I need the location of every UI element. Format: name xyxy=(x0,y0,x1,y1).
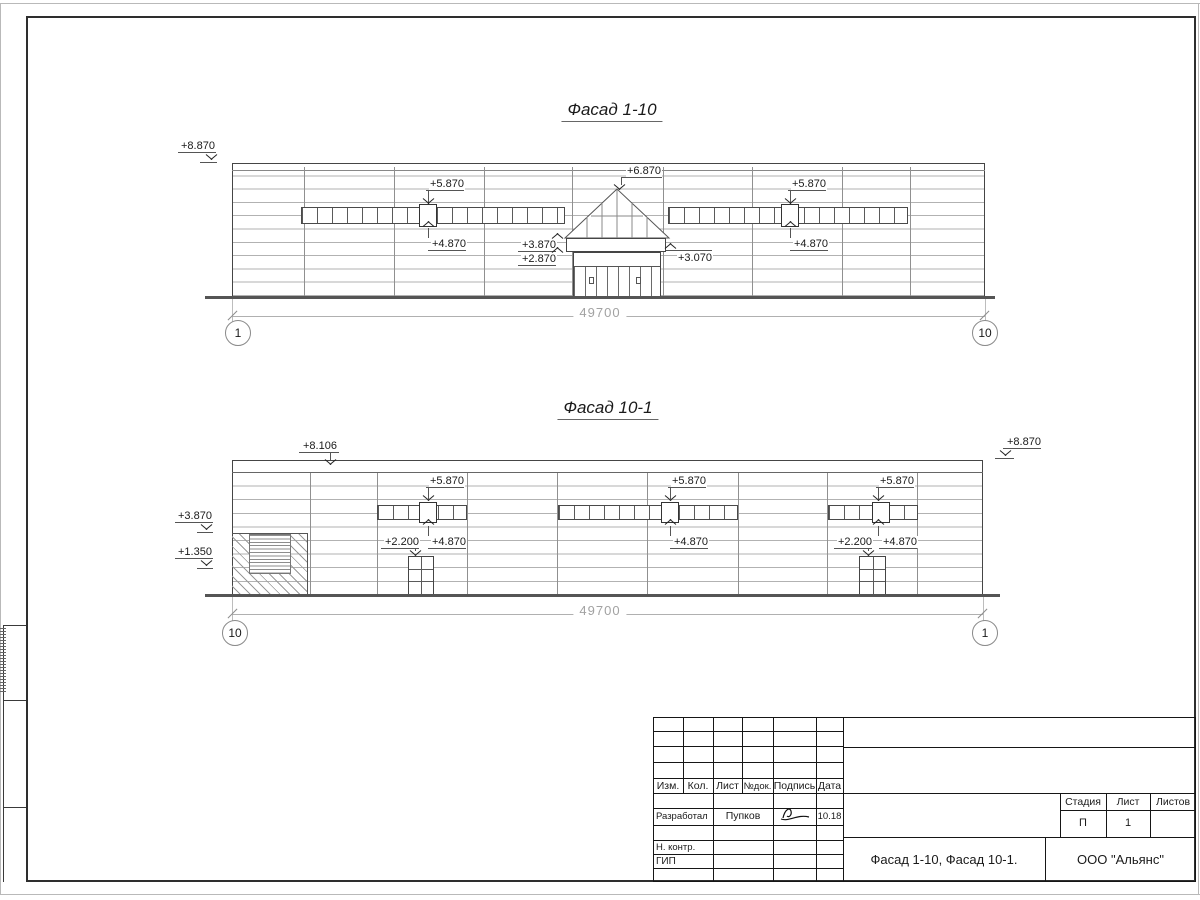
column-line xyxy=(917,473,918,594)
elevation-shelf-line xyxy=(426,487,464,488)
elevation-label: +2.870 xyxy=(521,253,557,265)
facade1-ground-line xyxy=(205,296,995,299)
elevation-arrow-icon xyxy=(423,495,434,501)
elevation-shelf-line xyxy=(428,250,466,251)
drawing-sheet: Фасад 1-10 49700 1 10 +8.870+5.870+4.870… xyxy=(0,0,1200,900)
elevation-label: +5.870 xyxy=(791,178,827,190)
signature xyxy=(779,805,813,823)
column-line xyxy=(647,473,648,594)
stamp-sheet-value: 1 xyxy=(1106,817,1150,829)
elevation-arrow-icon xyxy=(410,550,421,556)
elevation-shelf-line xyxy=(834,548,872,549)
elevation-leader-line xyxy=(790,228,791,238)
column-line xyxy=(557,473,558,594)
elevation-shelf-line xyxy=(178,152,216,153)
stamp-role-developed: Разработал xyxy=(656,811,708,822)
grid-bubble-label: 1 xyxy=(982,626,989,640)
elevation-label: +1.350 xyxy=(177,546,213,558)
elevation-arrow-icon xyxy=(1000,450,1011,456)
title-block-line xyxy=(653,854,843,855)
column-line xyxy=(394,167,395,296)
dimension-value: 49700 xyxy=(573,603,626,618)
elevation-shelf-line xyxy=(668,487,706,488)
title-block-line xyxy=(653,793,843,794)
elevation-shelf-line xyxy=(790,250,828,251)
stamp-organization: ООО "Альянс" xyxy=(1045,852,1196,867)
elevation-base-line xyxy=(995,458,1014,459)
elevation-arrow-icon xyxy=(201,560,212,566)
side-door xyxy=(408,556,434,595)
column-line xyxy=(827,473,828,594)
elevation-label: +8.106 xyxy=(302,440,338,452)
title-block-line xyxy=(843,837,1196,838)
elevation-label: +4.870 xyxy=(431,238,467,250)
elevation-label: +8.870 xyxy=(1006,436,1042,448)
title-block-line xyxy=(843,747,1196,748)
elevation-shelf-line xyxy=(876,487,914,488)
stamp-stage-value: П xyxy=(1060,817,1106,829)
stamp-header-ndok: №док. xyxy=(742,781,773,792)
column-line xyxy=(377,473,378,594)
title-block-line xyxy=(816,717,817,882)
elevation-shelf-line xyxy=(879,548,917,549)
stamp-sheets-header: Листов xyxy=(1150,796,1196,808)
margin-cell-line xyxy=(3,625,26,626)
elevation-arrow-icon xyxy=(665,243,676,249)
elevation-shelf-line xyxy=(1003,448,1041,449)
stamp-header-list: Лист xyxy=(713,780,742,792)
elevation-shelf-line xyxy=(428,548,466,549)
elevation-arrow-icon xyxy=(665,495,676,501)
entrance-door-mullions xyxy=(574,266,660,296)
elevation-base-line xyxy=(200,162,217,163)
title-block-line xyxy=(653,840,843,841)
stamp-sheet-header: Лист xyxy=(1106,796,1150,808)
elevation-label: +3.870 xyxy=(177,510,213,522)
column-line xyxy=(310,473,311,594)
louver-grille xyxy=(249,534,291,574)
stamp-stage-header: Стадия xyxy=(1060,796,1106,808)
elevation-label: +5.870 xyxy=(429,475,465,487)
title-block-line xyxy=(653,746,843,747)
title-block-line xyxy=(653,825,843,826)
title-block-line xyxy=(773,717,774,882)
elevation-arrow-icon xyxy=(614,184,625,190)
door-handle xyxy=(589,277,594,284)
entrance-canopy xyxy=(566,238,666,252)
margin-cell-line xyxy=(3,700,26,701)
facade2-ground-line xyxy=(205,594,1000,597)
stamp-role-ncontrol: Н. контр. xyxy=(656,842,695,853)
entrance-doors xyxy=(573,252,661,297)
elevation-shelf-line xyxy=(175,558,213,559)
stamp-date: 10.18 xyxy=(816,811,843,822)
elevation-label: +8.870 xyxy=(180,140,216,152)
elevation-leader-line xyxy=(878,526,879,536)
stamp-header-data: Дата xyxy=(816,780,843,792)
grid-bubble-label: 10 xyxy=(978,326,991,340)
elevation-arrow-icon xyxy=(423,221,434,227)
elevation-arrow-icon xyxy=(423,198,434,204)
stamp-developed-by: Пупков xyxy=(713,810,773,822)
elevation-label: +5.870 xyxy=(879,475,915,487)
elevation-shelf-line xyxy=(299,452,339,453)
elevation-base-line xyxy=(197,532,213,533)
elevation-label: +4.870 xyxy=(673,536,709,548)
outer-border-top xyxy=(0,3,1200,4)
elevation-arrow-icon xyxy=(873,519,884,525)
elevation-label: +4.870 xyxy=(793,238,829,250)
facade1-title-text: Фасад 1-10 xyxy=(561,100,662,122)
column-line xyxy=(304,167,305,296)
elevation-label: +3.070 xyxy=(677,252,713,264)
stamp-role-gip: ГИП xyxy=(656,856,676,867)
elevation-shelf-line xyxy=(622,177,662,178)
entrance-transom xyxy=(574,266,660,267)
elevation-arrow-icon xyxy=(873,495,884,501)
grid-bubble-label: 10 xyxy=(228,626,241,640)
column-line xyxy=(752,167,753,296)
elevation-leader-line xyxy=(428,526,429,536)
title-block-line xyxy=(713,717,714,882)
elevation-arrow-icon xyxy=(785,198,796,204)
outer-border-bottom xyxy=(0,894,1200,895)
title-block-line xyxy=(653,762,843,763)
elevation-arrow-icon xyxy=(665,519,676,525)
stamp-header-kol: Кол. xyxy=(683,780,713,792)
elevation-label: +6.870 xyxy=(626,165,662,177)
elevation-arrow-icon xyxy=(325,459,336,465)
elevation-label: +4.870 xyxy=(882,536,918,548)
grid-bubble-1: 1 xyxy=(225,320,251,346)
column-line xyxy=(467,473,468,594)
elevation-leader-line xyxy=(428,228,429,238)
elevation-shelf-line xyxy=(788,190,826,191)
outer-border-right xyxy=(1198,3,1199,895)
column-line xyxy=(484,167,485,296)
margin-cell-line xyxy=(3,807,26,808)
elevation-label: +2.200 xyxy=(384,536,420,548)
elevation-label: +5.870 xyxy=(671,475,707,487)
column-line xyxy=(910,167,911,296)
dimension-value: 49700 xyxy=(573,305,626,320)
facade1-title: Фасад 1-10 xyxy=(561,100,662,120)
elevation-base-line xyxy=(197,568,213,569)
elevation-arrow-icon xyxy=(423,519,434,525)
title-block-line xyxy=(653,731,843,732)
window-band xyxy=(558,505,738,520)
elevation-arrow-icon xyxy=(206,154,217,160)
elevation-shelf-line xyxy=(670,548,708,549)
elevation-arrow-icon xyxy=(863,550,874,556)
elevation-arrow-icon xyxy=(785,221,796,227)
grid-bubble-1: 1 xyxy=(972,620,998,646)
elevation-label: +4.870 xyxy=(431,536,467,548)
entrance-roof xyxy=(563,186,671,239)
column-line xyxy=(842,167,843,296)
stamp-doc-title: Фасад 1-10, Фасад 10-1. xyxy=(843,852,1045,867)
title-block-line xyxy=(843,793,1196,794)
facade2-title: Фасад 10-1 xyxy=(557,398,658,418)
facade2-title-text: Фасад 10-1 xyxy=(557,398,658,420)
stamp-header-podpis: Подпись xyxy=(773,780,816,792)
door-handle xyxy=(636,277,641,284)
title-block-line xyxy=(653,778,843,779)
grid-bubble-label: 1 xyxy=(235,326,242,340)
elevation-shelf-line xyxy=(666,250,712,251)
elevation-shelf-line xyxy=(518,265,556,266)
margin-vertical-text xyxy=(0,628,6,692)
grid-bubble-10: 10 xyxy=(972,320,998,346)
side-door xyxy=(859,556,886,595)
title-block-line xyxy=(653,868,843,869)
outer-border-left xyxy=(0,3,1,895)
elevation-shelf-line xyxy=(426,190,464,191)
grid-bubble-10: 10 xyxy=(222,620,248,646)
elevation-arrow-icon xyxy=(201,524,212,530)
column-line xyxy=(738,473,739,594)
title-block-line xyxy=(653,808,843,809)
stamp-header-izm: Изм. xyxy=(653,780,683,792)
elevation-label: +2.200 xyxy=(837,536,873,548)
title-block-line xyxy=(1060,810,1196,811)
elevation-label: +5.870 xyxy=(429,178,465,190)
elevation-leader-line xyxy=(670,526,671,536)
elevation-shelf-line xyxy=(381,548,419,549)
elevation-shelf-line xyxy=(175,522,213,523)
